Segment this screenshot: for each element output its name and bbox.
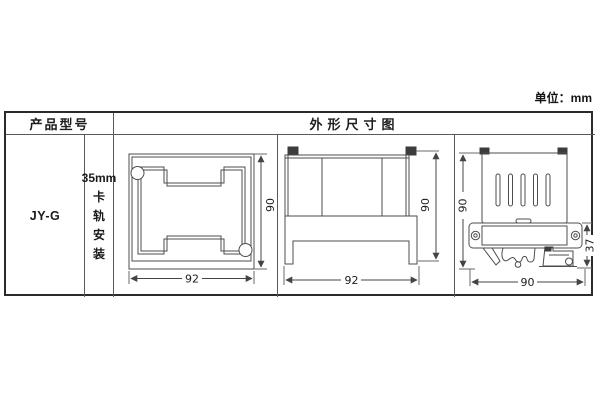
mounting-char: 轨 <box>93 207 105 226</box>
front-view-height-dimension: 90 <box>254 154 277 269</box>
base-profile <box>285 216 417 264</box>
front-view-outline <box>129 154 254 269</box>
side-view-height-label: 90 <box>419 198 432 212</box>
mounting-size-label: 35mm <box>82 169 117 188</box>
screw-hole <box>239 244 252 257</box>
side-view-width-dimension: 92 <box>284 266 419 287</box>
rail-view-width-dimension: 90 <box>470 269 585 289</box>
vent-slot <box>534 174 538 206</box>
mounting-char: 装 <box>93 245 105 264</box>
mounting-char: 安 <box>93 226 105 245</box>
latch-slot <box>516 219 531 223</box>
header-product-model: 产品型号 <box>6 113 114 135</box>
cell-front-view: 90 92 <box>114 135 278 297</box>
side-view-height-dimension: 90 <box>416 151 439 261</box>
spec-table: 产品型号 外形尺寸图 JY-G 35mm 卡 轨 安 装 <box>4 111 593 296</box>
rail-spring <box>502 248 535 262</box>
rail-view-base-height-label: 37 <box>584 239 597 253</box>
rail-view-drawing: 90 37 90 <box>455 135 595 297</box>
rail-view-base-height-dimension: 37 <box>577 223 597 268</box>
front-view-width-dimension: 92 <box>129 271 254 286</box>
unit-label: 单位：mm <box>535 89 592 106</box>
front-view-drawing: 90 92 <box>114 135 278 297</box>
cell-side-view: 90 92 <box>278 135 455 297</box>
page: 单位：mm 产品型号 外形尺寸图 JY-G 35mm 卡 轨 安 装 <box>0 0 600 400</box>
front-view-width-label: 92 <box>185 273 199 286</box>
front-view-height-label: 90 <box>264 198 277 212</box>
rail-view-height-label: 90 <box>457 199 470 213</box>
vent-slot <box>521 174 525 206</box>
side-view-drawing: 90 92 <box>278 135 455 297</box>
mounting-char: 卡 <box>93 188 105 207</box>
vent-slot <box>509 174 513 206</box>
rail-view-outline <box>469 148 582 267</box>
rail-view-height-dimension: 90 <box>457 153 481 269</box>
cell-rail-view: 90 37 90 <box>455 135 595 297</box>
header-dimension-diagram: 外形尺寸图 <box>114 113 595 135</box>
clip-tab <box>483 248 500 265</box>
screw-hole <box>131 167 144 180</box>
mount-screw <box>571 231 579 239</box>
terminal-screw <box>406 147 416 155</box>
cell-model: JY-G <box>6 135 85 297</box>
cell-mounting: 35mm 卡 轨 安 装 <box>85 135 114 297</box>
socket-base <box>469 223 582 248</box>
mount-screw <box>471 231 479 239</box>
side-view-outline <box>285 147 417 264</box>
vent-slot <box>546 174 550 206</box>
rail-view-width-label: 90 <box>521 276 535 289</box>
terminal-screw <box>288 147 298 155</box>
vent-slot <box>496 174 500 206</box>
side-view-width-label: 92 <box>344 274 358 287</box>
